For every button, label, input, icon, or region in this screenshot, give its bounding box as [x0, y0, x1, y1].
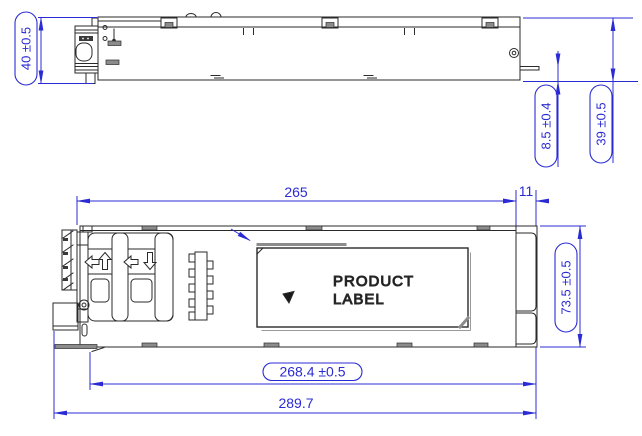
- arrow-left-icon: [85, 256, 99, 268]
- keyhole-slot: [82, 324, 87, 336]
- dim-length-to-latch-label: 268.4 ±0.5: [279, 364, 345, 380]
- dim-connector-offset-label: 8.5 ±0.4: [539, 103, 554, 150]
- arrow-left-icon: [124, 256, 138, 268]
- side-view-dimensions: 40 ±0.5 8.5 ±0.4 39 ±0.5: [15, 12, 638, 167]
- extraction-handle: [77, 232, 173, 322]
- front-connector-box: [53, 303, 104, 352]
- side-view: 40 ±0.5 8.5 ±0.4 39 ±0.5: [15, 12, 638, 167]
- arrow-down-icon: [144, 253, 156, 270]
- dim-width-label: 73.5 ±0.5: [559, 260, 574, 314]
- dim-height-body-label: 39 ±0.5: [594, 102, 609, 145]
- vent-strip: [189, 252, 213, 320]
- side-view-handle: [75, 18, 98, 84]
- screw-icon: [510, 49, 519, 58]
- dim-connector-length-label: 11: [519, 183, 534, 199]
- drawing-canvas: 40 ±0.5 8.5 ±0.4 39 ±0.5: [0, 0, 642, 436]
- dome-bump: [211, 13, 221, 17]
- dome-bump: [186, 14, 196, 18]
- engineering-drawing: 40 ±0.5 8.5 ±0.4 39 ±0.5: [0, 0, 642, 436]
- side-slot: [106, 60, 119, 65]
- dim-width: 73.5 ±0.5: [555, 243, 577, 332]
- dim-height-overall-label: 40 ±0.5: [19, 27, 34, 70]
- product-label-line2: LABEL: [333, 291, 385, 308]
- product-label-line1: PRODUCT: [333, 273, 414, 290]
- dim-height-overall: 40 ±0.5: [15, 12, 37, 85]
- plan-view: PRODUCT LABEL 265 11 73.5 ±0: [53, 183, 586, 419]
- rear-tab: [520, 67, 539, 71]
- dim-connector-offset: 8.5 ±0.4: [535, 85, 557, 167]
- side-slot: [108, 41, 121, 46]
- dim-length-to-latch: 268.4 ±0.5: [263, 363, 362, 381]
- rivet-ticks: [244, 29, 415, 35]
- right-end-cap: [516, 226, 537, 347]
- dim-body-length-label: 265: [284, 184, 308, 200]
- flush-rivet-marks: [211, 76, 377, 79]
- product-label: PRODUCT LABEL: [257, 245, 471, 331]
- dim-height-body: 39 ±0.5: [590, 85, 612, 163]
- arrow-up-icon: [99, 253, 111, 270]
- dim-length-overall-label: 289.7: [278, 395, 313, 411]
